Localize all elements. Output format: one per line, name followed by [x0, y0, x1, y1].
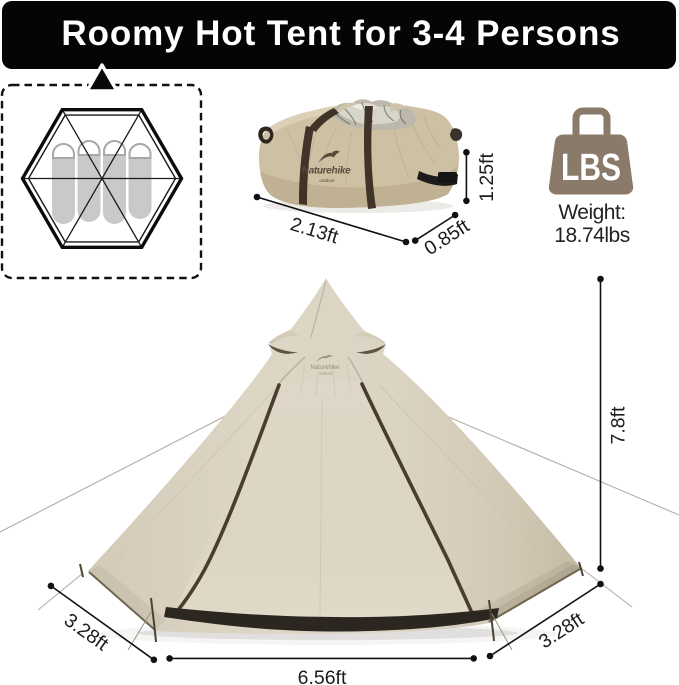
svg-text:0.85ft: 0.85ft [420, 215, 473, 260]
svg-text:7.8ft: 7.8ft [608, 406, 630, 445]
svg-text:1.25ft: 1.25ft [476, 153, 498, 202]
svg-text:2.13ft: 2.13ft [288, 213, 342, 248]
svg-text:6.56ft: 6.56ft [298, 667, 347, 685]
svg-text:3.28ft: 3.28ft [60, 609, 113, 656]
svg-text:Naturehike: Naturehike [302, 166, 351, 177]
svg-text:Naturehike: Naturehike [310, 365, 340, 371]
svg-text:3.28ft: 3.28ft [535, 608, 588, 653]
svg-text:LBS: LBS [561, 147, 621, 189]
svg-text:outdoors: outdoors [319, 372, 333, 376]
svg-text:outdoor: outdoor [319, 178, 335, 183]
